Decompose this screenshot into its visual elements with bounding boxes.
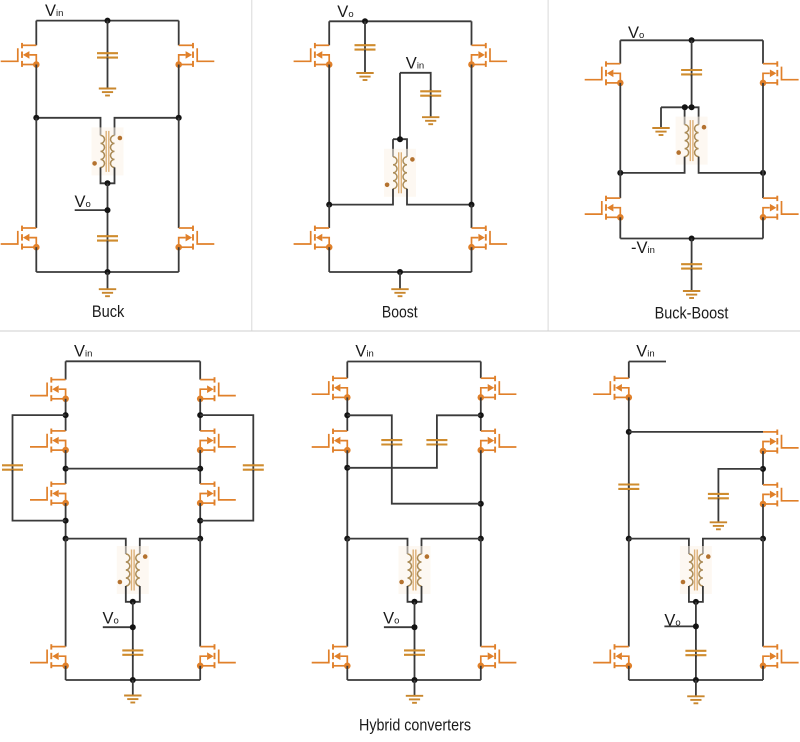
svg-text:Vin: Vin [45, 2, 63, 20]
svg-text:Vo: Vo [75, 193, 91, 211]
svg-text:Boost: Boost [382, 303, 418, 321]
svg-text:Vin: Vin [355, 342, 373, 360]
svg-text:Vin: Vin [74, 343, 92, 361]
svg-text:Hybrid converters: Hybrid converters [359, 716, 471, 734]
svg-text:Vo: Vo [103, 609, 119, 627]
svg-text:Vo: Vo [383, 609, 399, 627]
svg-text:Vo: Vo [337, 3, 353, 21]
svg-text:Buck: Buck [92, 303, 125, 321]
svg-text:Buck-Boost: Buck-Boost [655, 304, 729, 322]
svg-text:Vo: Vo [628, 24, 644, 42]
svg-text:Vin: Vin [636, 342, 654, 360]
svg-text:Vin: Vin [406, 54, 424, 72]
svg-text:-Vin: -Vin [631, 239, 655, 257]
